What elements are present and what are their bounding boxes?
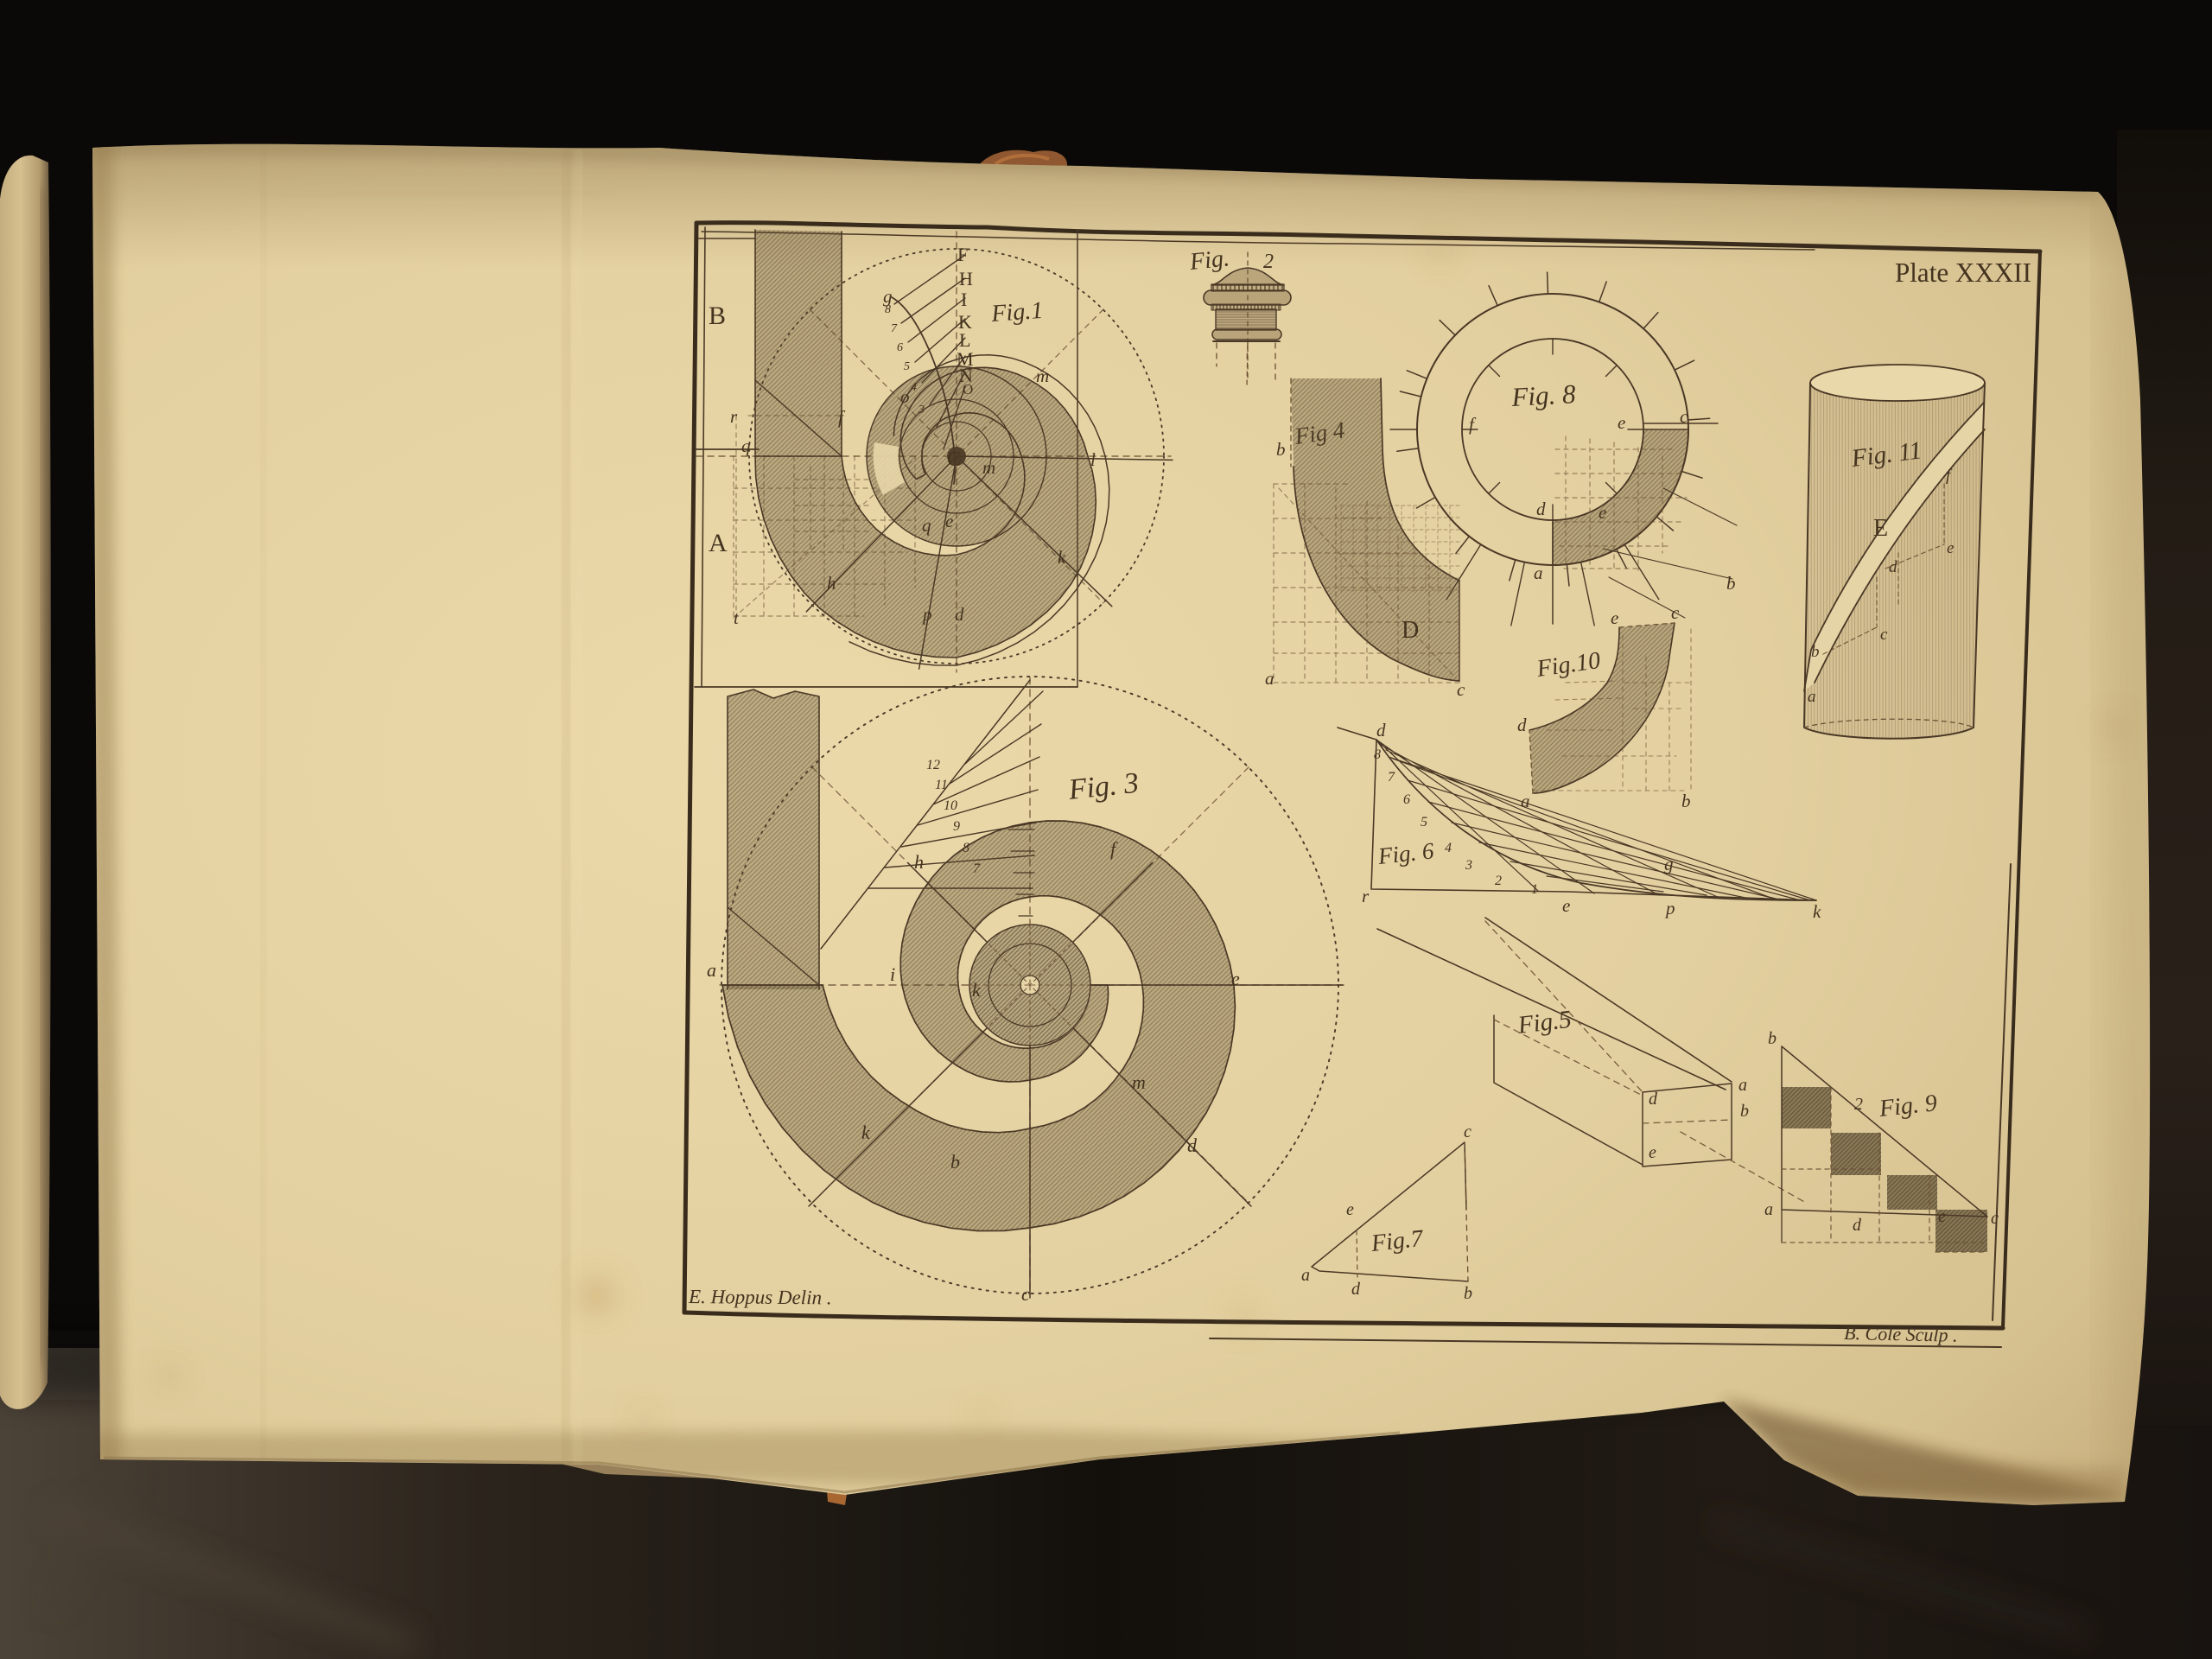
svg-text:11: 11	[935, 778, 948, 792]
svg-text:d: d	[1889, 558, 1897, 576]
svg-text:m: m	[982, 457, 995, 478]
svg-text:3: 3	[1465, 858, 1472, 873]
svg-text:c: c	[1991, 1209, 1999, 1228]
svg-text:q: q	[922, 515, 931, 536]
svg-text:10: 10	[944, 798, 957, 813]
svg-text:9: 9	[953, 819, 960, 834]
svg-text:g: g	[883, 286, 893, 307]
svg-text:e: e	[1231, 968, 1240, 989]
svg-text:6: 6	[1403, 792, 1410, 807]
svg-text:e: e	[945, 511, 953, 531]
svg-text:2: 2	[1495, 874, 1502, 888]
svg-text:p: p	[1664, 898, 1675, 918]
svg-text:1: 1	[1531, 882, 1538, 897]
svg-text:3: 3	[918, 404, 925, 416]
svg-text:7: 7	[1388, 770, 1395, 785]
svg-text:b: b	[1276, 439, 1286, 460]
svg-text:d: d	[1376, 720, 1386, 741]
svg-text:e: e	[1938, 1207, 1946, 1226]
svg-text:Fig. 8: Fig. 8	[1510, 378, 1577, 412]
svg-text:r: r	[730, 406, 738, 427]
svg-text:D: D	[1402, 617, 1419, 644]
svg-text:e: e	[1618, 412, 1625, 433]
svg-text:q: q	[741, 435, 751, 456]
svg-text:d: d	[1517, 715, 1527, 735]
svg-text:k: k	[972, 979, 982, 1001]
svg-text:e: e	[1562, 895, 1570, 916]
svg-text:k: k	[1058, 547, 1066, 568]
svg-text:p: p	[921, 604, 932, 625]
svg-text:a: a	[1808, 688, 1816, 706]
svg-text:m: m	[1036, 365, 1049, 386]
svg-text:b: b	[1681, 791, 1691, 811]
svg-text:c: c	[1671, 602, 1680, 623]
svg-text:A: A	[709, 529, 728, 557]
svg-text:i: i	[890, 963, 895, 985]
svg-text:e: e	[1599, 502, 1606, 523]
svg-text:H: H	[959, 268, 973, 289]
svg-text:e: e	[1649, 1143, 1656, 1162]
svg-text:O: O	[963, 381, 973, 397]
svg-text:E. Hoppus Delin .: E. Hoppus Delin .	[688, 1286, 832, 1308]
svg-text:E: E	[1873, 515, 1888, 542]
svg-text:12: 12	[926, 758, 940, 772]
svg-text:7: 7	[973, 861, 981, 876]
svg-text:m: m	[1132, 1071, 1146, 1093]
svg-text:c: c	[1021, 1283, 1030, 1305]
svg-text:B: B	[709, 302, 726, 330]
svg-text:a: a	[1301, 1266, 1310, 1285]
svg-text:Fig.: Fig.	[1187, 245, 1230, 276]
svg-text:c: c	[1464, 1122, 1471, 1141]
svg-text:d: d	[1536, 499, 1546, 519]
svg-text:o: o	[900, 386, 910, 407]
svg-text:Fig.1: Fig.1	[989, 297, 1044, 327]
svg-text:F: F	[957, 244, 968, 265]
svg-text:d: d	[1351, 1280, 1361, 1299]
svg-text:b: b	[1464, 1284, 1472, 1303]
svg-text:g: g	[1664, 854, 1674, 874]
svg-text:2: 2	[1263, 251, 1274, 273]
svg-text:d: d	[1853, 1216, 1862, 1235]
svg-text:e: e	[1346, 1200, 1354, 1219]
svg-text:b: b	[950, 1151, 960, 1173]
svg-text:8: 8	[1374, 747, 1381, 762]
svg-text:l: l	[1090, 449, 1096, 470]
svg-text:d: d	[1187, 1135, 1198, 1156]
svg-text:a: a	[1265, 668, 1274, 689]
svg-text:7: 7	[891, 322, 898, 335]
svg-text:2: 2	[1854, 1095, 1863, 1114]
svg-text:Plate XXXII: Plate XXXII	[1895, 257, 2031, 288]
svg-text:e: e	[1611, 607, 1618, 628]
svg-text:a: a	[1738, 1076, 1747, 1095]
svg-text:8: 8	[963, 841, 969, 855]
svg-text:C: C	[947, 448, 961, 471]
svg-text:k: k	[861, 1122, 871, 1143]
svg-text:a: a	[1534, 563, 1543, 583]
svg-text:4: 4	[1445, 841, 1452, 855]
svg-text:c: c	[1680, 406, 1688, 427]
svg-text:d: d	[1649, 1090, 1658, 1109]
svg-text:c: c	[1457, 679, 1465, 700]
svg-text:5: 5	[1421, 815, 1427, 829]
svg-text:k: k	[1813, 901, 1821, 922]
svg-text:r: r	[1362, 886, 1370, 906]
svg-text:b: b	[1726, 573, 1736, 594]
svg-text:4: 4	[911, 381, 917, 394]
svg-text:b: b	[1811, 643, 1820, 661]
svg-text:c: c	[1880, 626, 1888, 644]
svg-text:B. Cole Sculp .: B. Cole Sculp .	[1844, 1322, 1958, 1346]
svg-text:Fig.7: Fig.7	[1369, 1225, 1425, 1257]
svg-text:h: h	[914, 851, 924, 873]
svg-text:6: 6	[897, 341, 903, 354]
svg-text:a: a	[1764, 1200, 1773, 1219]
svg-text:d: d	[955, 604, 964, 625]
svg-text:b: b	[1740, 1102, 1749, 1121]
svg-text:b: b	[1768, 1029, 1777, 1048]
svg-text:h: h	[827, 573, 836, 594]
svg-text:a: a	[707, 959, 716, 981]
svg-text:5: 5	[904, 360, 910, 373]
svg-text:e: e	[1947, 539, 1954, 557]
svg-text:I: I	[961, 289, 967, 310]
